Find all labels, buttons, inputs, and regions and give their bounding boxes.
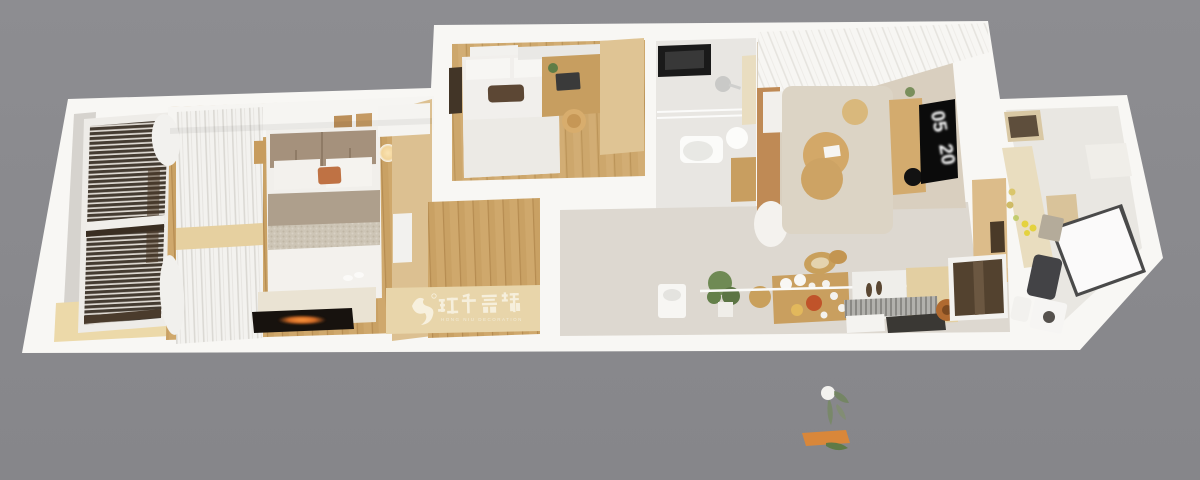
svg-text:HONG NIU DECORATION: HONG NIU DECORATION (441, 317, 523, 322)
svg-text:05: 05 (926, 109, 950, 134)
svg-text:20: 20 (934, 142, 958, 166)
